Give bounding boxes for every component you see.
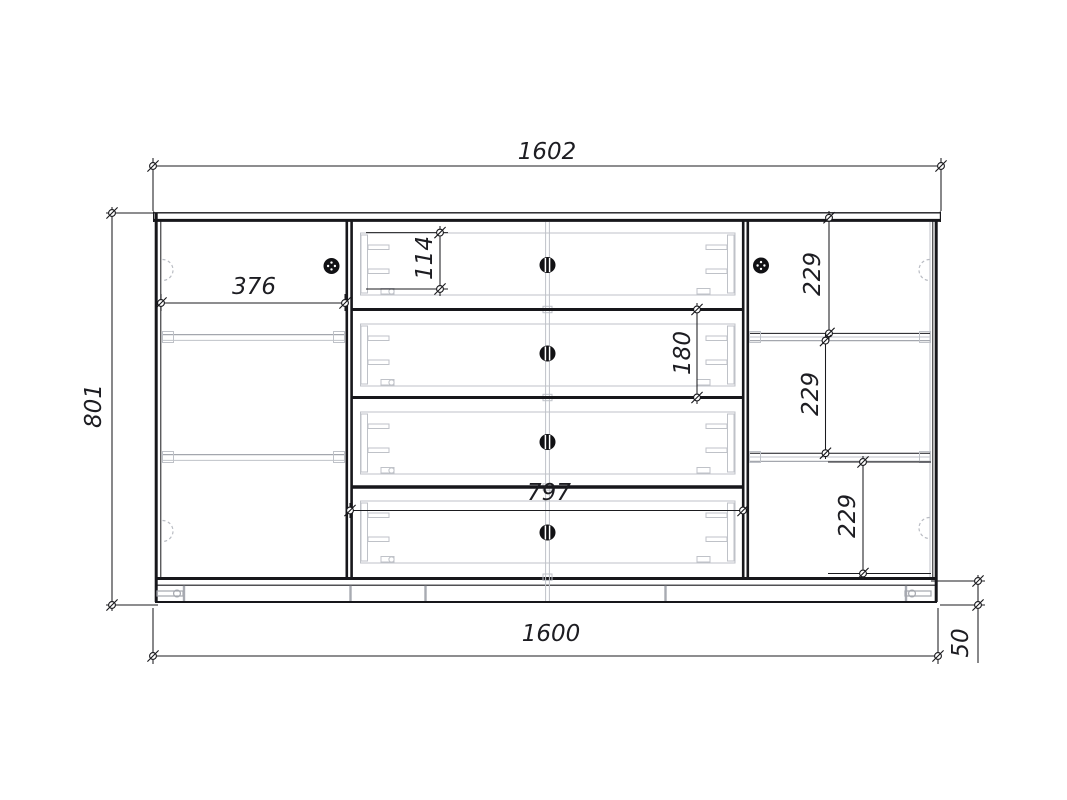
dim-bottom-width: 1600 [147, 608, 943, 664]
drawer-knob-icon [540, 525, 556, 541]
dim-endpoint-marker [106, 207, 117, 218]
drawer-knob-icon [540, 257, 556, 273]
adjustable-foot-right [905, 590, 931, 597]
dim-label-plinth-height: 50 [948, 628, 974, 657]
dim-second-drawer-pitch: 180 [670, 303, 703, 404]
dim-endpoint-marker [147, 650, 158, 661]
right-side-panel [930, 220, 936, 602]
dim-label-right-gap-bottom: 229 [835, 494, 861, 538]
dim-label-top-drawer-height: 114 [412, 236, 438, 280]
left-side-panel [156, 213, 161, 602]
divider-left [347, 221, 352, 578]
dim-endpoint-marker [147, 160, 158, 171]
right-shelf-1 [749, 332, 931, 343]
dim-endpoint-marker [339, 297, 350, 308]
dim-endpoint-marker [691, 304, 702, 315]
right-shelf-2 [749, 452, 931, 463]
dim-plinth-height: 50 [931, 575, 985, 663]
drawer-stack [347, 221, 748, 601]
dim-label-left-section-width: 376 [232, 274, 276, 300]
top-panel [153, 211, 941, 222]
left-door-section [162, 258, 345, 542]
technical-drawing-canvas: 1602 801 376 114 [0, 0, 1067, 800]
dim-label-right-gap-middle: 229 [798, 372, 824, 416]
dim-endpoint-marker [972, 599, 983, 610]
dim-right-gap-bottom: 229 [828, 456, 931, 580]
adjustable-foot-left [157, 590, 183, 597]
drawer-knob-icon [540, 434, 556, 450]
hinge-icon [163, 260, 174, 281]
dim-left-section-width: 376 [155, 274, 350, 311]
dim-top-width: 1602 [147, 139, 946, 211]
plinth-legs [157, 586, 931, 602]
hinge-icon [163, 521, 174, 542]
dim-top-drawer-height: 114 [366, 226, 448, 296]
dim-height: 801 [81, 207, 158, 611]
dim-right-gap-top: 229 [800, 211, 835, 340]
dim-endpoint-marker [434, 283, 445, 294]
dim-label-right-gap-top: 229 [800, 252, 826, 296]
dim-endpoint-marker [106, 599, 117, 610]
dim-right-gap-middle: 229 [798, 334, 831, 459]
dim-label-top-width: 1602 [518, 139, 577, 165]
dim-endpoint-marker [932, 650, 943, 661]
left-shelf-1 [162, 332, 345, 343]
dim-endpoint-marker [935, 160, 946, 171]
dim-endpoint-marker [972, 575, 983, 586]
hinge-icon [919, 260, 930, 281]
dim-endpoint-marker [691, 392, 702, 403]
left-shelf-2 [162, 452, 345, 463]
door-knob-icon [753, 258, 769, 274]
dim-label-drawer-section-width: 797 [527, 480, 571, 506]
dim-label-height: 801 [81, 384, 107, 428]
dim-endpoint-marker [857, 456, 868, 467]
door-knob-icon [324, 258, 340, 274]
drawer-3 [361, 412, 736, 474]
dim-label-second-drawer-pitch: 180 [670, 331, 696, 375]
dim-label-bottom-width: 1600 [522, 621, 581, 647]
drawer-knob-icon [540, 346, 556, 362]
hinge-icon [919, 518, 930, 539]
divider-right [743, 221, 748, 578]
